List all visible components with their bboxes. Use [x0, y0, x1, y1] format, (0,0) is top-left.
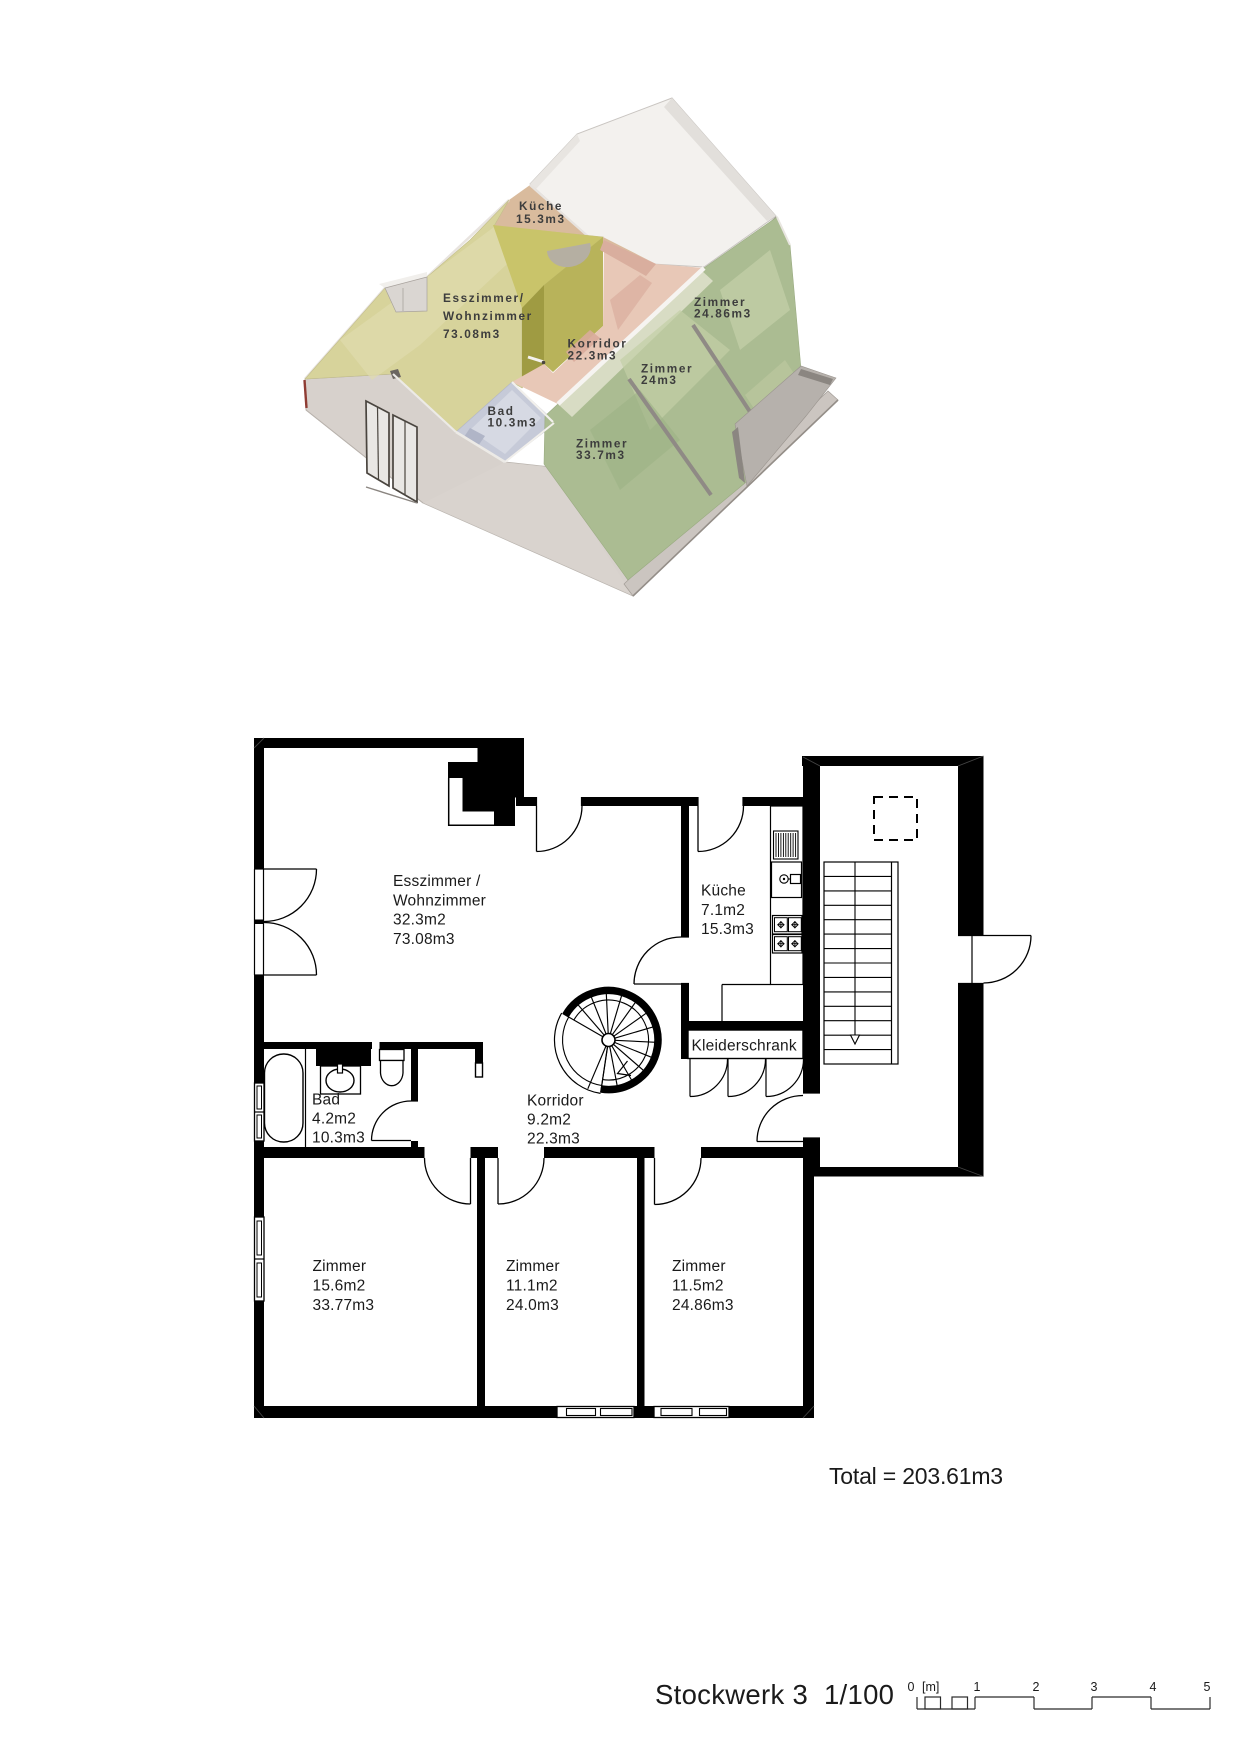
svg-text:73.08m3: 73.08m3	[393, 931, 455, 948]
svg-text:4: 4	[1150, 1680, 1157, 1694]
svg-text:Korridor: Korridor	[527, 1093, 584, 1110]
svg-text:Stockwerk 3 1/100: Stockwerk 3 1/100	[655, 1679, 894, 1710]
svg-text:Zimmer: Zimmer	[672, 1258, 726, 1275]
svg-text:24m3: 24m3	[641, 373, 678, 387]
svg-text:Küche: Küche	[701, 883, 746, 900]
svg-text:3: 3	[1091, 1680, 1098, 1694]
svg-text:15.3m3: 15.3m3	[701, 921, 754, 938]
svg-text:11.1m2: 11.1m2	[506, 1277, 558, 1294]
svg-text:32.3m2: 32.3m2	[393, 912, 446, 929]
svg-text:15.6m2: 15.6m2	[313, 1277, 366, 1294]
svg-text:9.2m2: 9.2m2	[527, 1112, 571, 1129]
svg-text:Zimmer: Zimmer	[313, 1258, 367, 1275]
svg-text:10.3m3: 10.3m3	[312, 1130, 365, 1147]
svg-text:0: 0	[908, 1680, 915, 1694]
svg-text:[m]: [m]	[922, 1680, 939, 1694]
svg-text:22.3m3: 22.3m3	[568, 349, 618, 363]
svg-text:24.86m3: 24.86m3	[694, 307, 752, 321]
svg-text:2: 2	[1033, 1680, 1040, 1694]
svg-text:Esszimmer /: Esszimmer /	[393, 873, 481, 890]
svg-text:4.2m2: 4.2m2	[312, 1111, 356, 1128]
svg-text:Wohnzimmer: Wohnzimmer	[443, 309, 533, 323]
svg-text:7.1m2: 7.1m2	[701, 902, 745, 919]
svg-text:1: 1	[974, 1680, 981, 1694]
svg-text:22.3m3: 22.3m3	[527, 1131, 580, 1148]
svg-text:33.77m3: 33.77m3	[313, 1297, 375, 1314]
svg-text:Wohnzimmer: Wohnzimmer	[393, 892, 486, 909]
svg-text:Küche: Küche	[519, 199, 563, 213]
svg-text:33.7m3: 33.7m3	[576, 448, 626, 462]
svg-text:Total = 203.61m3: Total = 203.61m3	[829, 1463, 1003, 1489]
svg-text:24.0m3: 24.0m3	[506, 1297, 559, 1314]
svg-text:Esszimmer/: Esszimmer/	[443, 291, 525, 305]
svg-text:Bad: Bad	[312, 1092, 340, 1109]
svg-text:11.5m2: 11.5m2	[672, 1277, 724, 1294]
svg-text:Kleiderschrank: Kleiderschrank	[692, 1038, 797, 1055]
svg-text:10.3m3: 10.3m3	[488, 416, 538, 430]
svg-text:5: 5	[1204, 1680, 1211, 1694]
svg-text:73.08m3: 73.08m3	[443, 327, 501, 341]
svg-text:24.86m3: 24.86m3	[672, 1297, 734, 1314]
svg-text:15.3m3: 15.3m3	[516, 212, 566, 226]
svg-text:Zimmer: Zimmer	[506, 1258, 560, 1275]
